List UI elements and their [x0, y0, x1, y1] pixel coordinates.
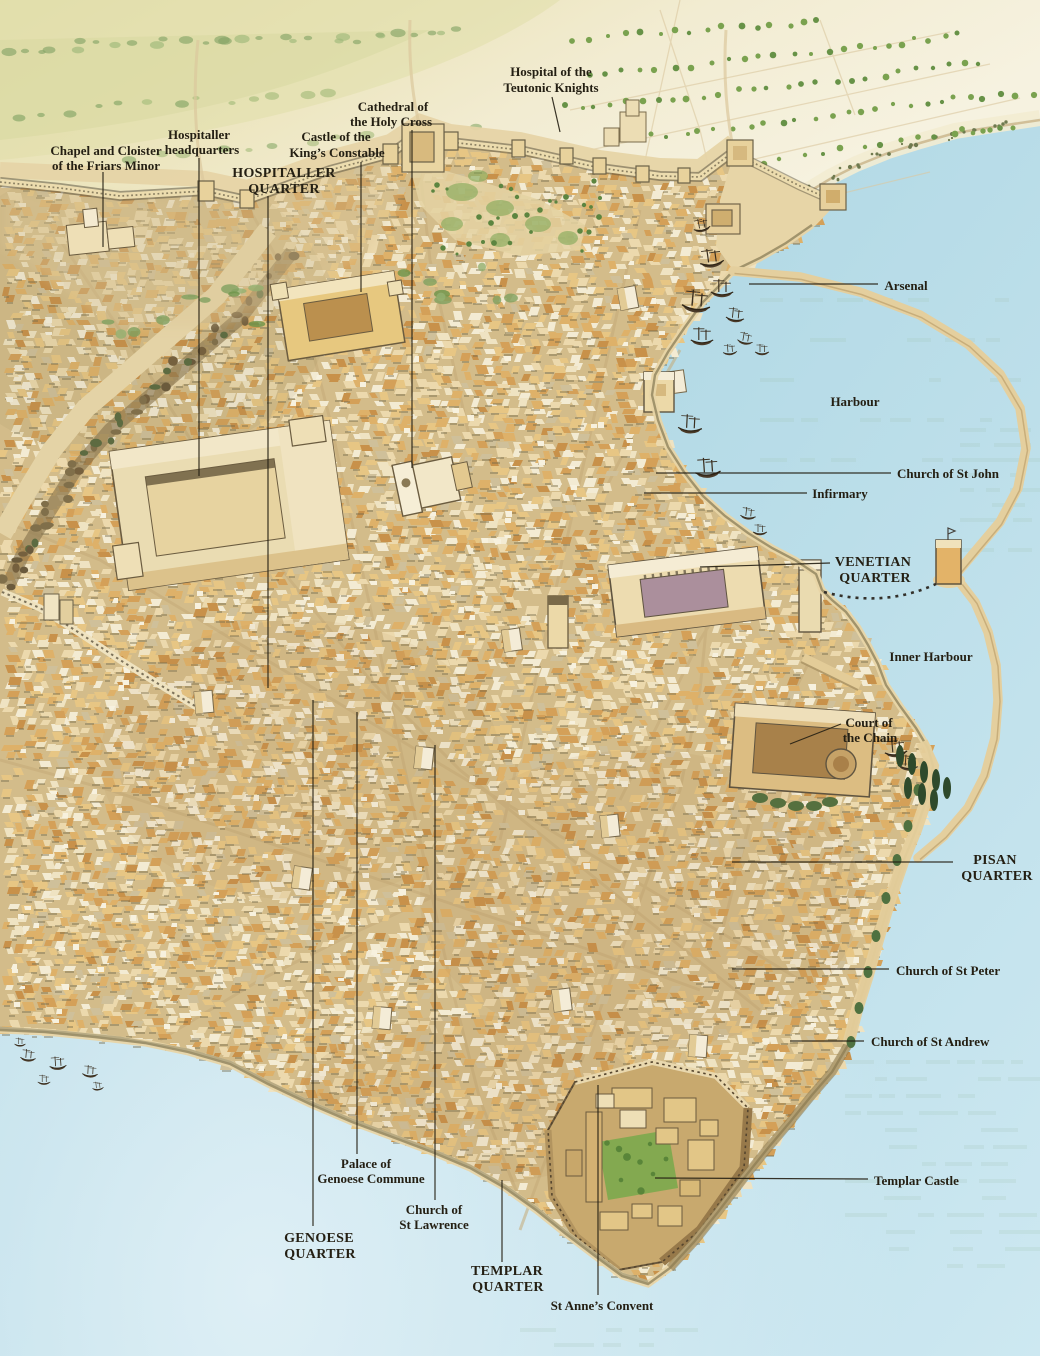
svg-text:GENOESE: GENOESE — [284, 1231, 354, 1246]
svg-text:QUARTER: QUARTER — [472, 1280, 544, 1295]
svg-text:Hospital of the: Hospital of the — [510, 64, 592, 79]
svg-text:QUARTER: QUARTER — [961, 869, 1033, 884]
svg-text:Church of St John: Church of St John — [897, 466, 1000, 481]
svg-text:Teutonic Knights: Teutonic Knights — [503, 80, 598, 95]
svg-text:QUARTER: QUARTER — [284, 1247, 356, 1262]
svg-text:Harbour: Harbour — [830, 394, 879, 409]
svg-text:St Lawrence: St Lawrence — [399, 1217, 469, 1232]
svg-text:Arsenal: Arsenal — [884, 278, 928, 293]
svg-text:St Anne’s Convent: St Anne’s Convent — [551, 1298, 654, 1313]
svg-text:QUARTER: QUARTER — [248, 182, 320, 197]
svg-text:King’s Constable: King’s Constable — [289, 145, 384, 160]
svg-text:Court of: Court of — [845, 715, 893, 730]
svg-text:HOSPITALLER: HOSPITALLER — [232, 166, 336, 181]
svg-text:the Chain: the Chain — [843, 730, 898, 745]
svg-text:Infirmary: Infirmary — [812, 486, 868, 501]
svg-text:of the Friars Minor: of the Friars Minor — [52, 158, 160, 173]
svg-text:VENETIAN: VENETIAN — [835, 555, 911, 570]
svg-text:the Holy Cross: the Holy Cross — [350, 114, 432, 129]
svg-text:Church of: Church of — [406, 1202, 463, 1217]
svg-text:headquarters: headquarters — [165, 142, 239, 157]
svg-text:Church of St Andrew: Church of St Andrew — [871, 1034, 990, 1049]
svg-text:Palace of: Palace of — [341, 1156, 392, 1171]
svg-text:TEMPLAR: TEMPLAR — [471, 1264, 544, 1279]
svg-text:Church of St Peter: Church of St Peter — [896, 963, 1000, 978]
svg-text:Templar Castle: Templar Castle — [874, 1173, 959, 1188]
svg-text:Hospitaller: Hospitaller — [168, 127, 230, 142]
svg-text:Chapel and Cloister: Chapel and Cloister — [50, 143, 161, 158]
svg-text:Cathedral of: Cathedral of — [358, 99, 429, 114]
svg-text:Genoese Commune: Genoese Commune — [317, 1171, 424, 1186]
svg-text:Inner Harbour: Inner Harbour — [889, 649, 972, 664]
svg-text:Castle of the: Castle of the — [301, 129, 371, 144]
svg-text:QUARTER: QUARTER — [839, 571, 911, 586]
svg-text:PISAN: PISAN — [973, 853, 1017, 868]
